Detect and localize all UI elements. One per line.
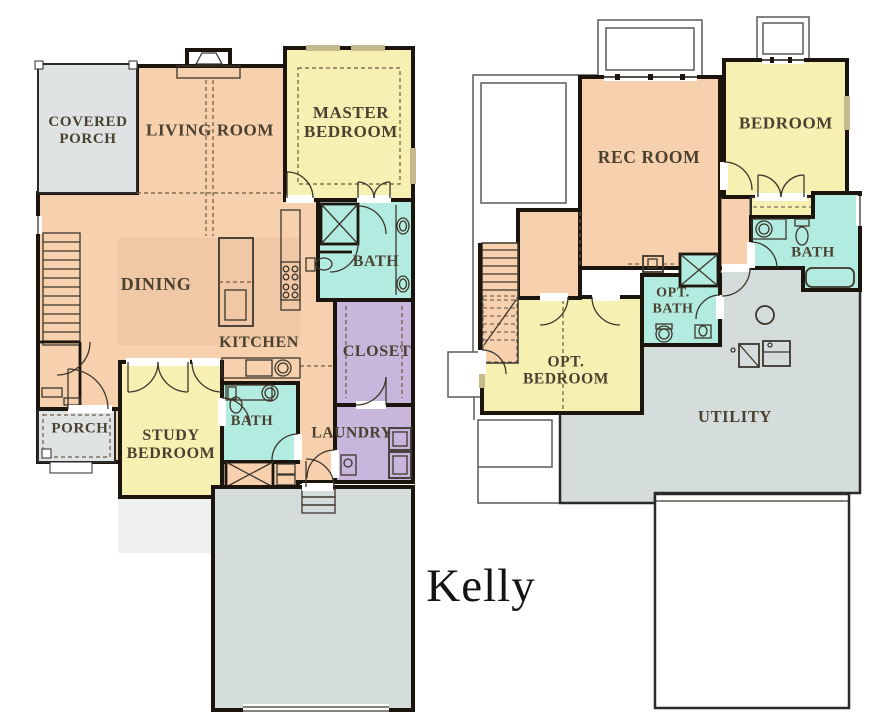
label-porch: PORCH bbox=[51, 421, 108, 438]
label-study-bedroom: STUDY BEDROOM bbox=[127, 427, 216, 463]
label-rec-room: REC ROOM bbox=[598, 148, 701, 168]
porch-step bbox=[50, 462, 92, 473]
garage-outline bbox=[655, 494, 849, 708]
label-kitchen: KITCHEN bbox=[219, 334, 299, 352]
hall-upper bbox=[518, 210, 580, 298]
stairwell bbox=[482, 243, 518, 363]
label-opt-bath: OPT. BATH bbox=[652, 285, 693, 316]
floorplan-drawing bbox=[0, 0, 874, 727]
roof-outline bbox=[478, 467, 560, 503]
shower-icon bbox=[680, 254, 718, 286]
label-utility: UTILITY bbox=[698, 408, 772, 426]
garage-door bbox=[243, 704, 389, 714]
label-master-bath: BATH bbox=[353, 253, 400, 271]
hall-vestibule bbox=[720, 197, 751, 268]
label-opt-bedroom: OPT. BEDROOM bbox=[523, 354, 609, 389]
label-bedroom2: BEDROOM bbox=[739, 113, 833, 132]
roof-bump bbox=[448, 352, 482, 397]
label-dining: DINING bbox=[121, 274, 192, 294]
porch-post-icon bbox=[129, 61, 137, 69]
label-master-bedroom: MASTER BEDROOM bbox=[304, 103, 398, 141]
plan-title: Kelly bbox=[426, 559, 535, 613]
roof-box bbox=[478, 420, 552, 467]
attic-open-area bbox=[481, 83, 566, 203]
label-laundry: LAUNDRY bbox=[311, 424, 392, 441]
room-rec-room bbox=[580, 77, 720, 268]
room-garage bbox=[213, 487, 413, 710]
patio-shade bbox=[118, 497, 213, 553]
room-master-bath bbox=[318, 200, 413, 300]
label-covered-porch: COVERED PORCH bbox=[48, 114, 127, 148]
label-bath2: BATH bbox=[791, 245, 835, 262]
porch-post-icon bbox=[42, 449, 51, 458]
porch-post-icon bbox=[35, 61, 43, 69]
label-hall-bath: BATH bbox=[231, 413, 273, 429]
label-closet: CLOSET bbox=[343, 343, 412, 361]
floorplan-canvas: COVERED PORCH LIVING ROOM MASTER BEDROOM… bbox=[0, 0, 874, 727]
label-living-room: LIVING ROOM bbox=[146, 120, 274, 139]
